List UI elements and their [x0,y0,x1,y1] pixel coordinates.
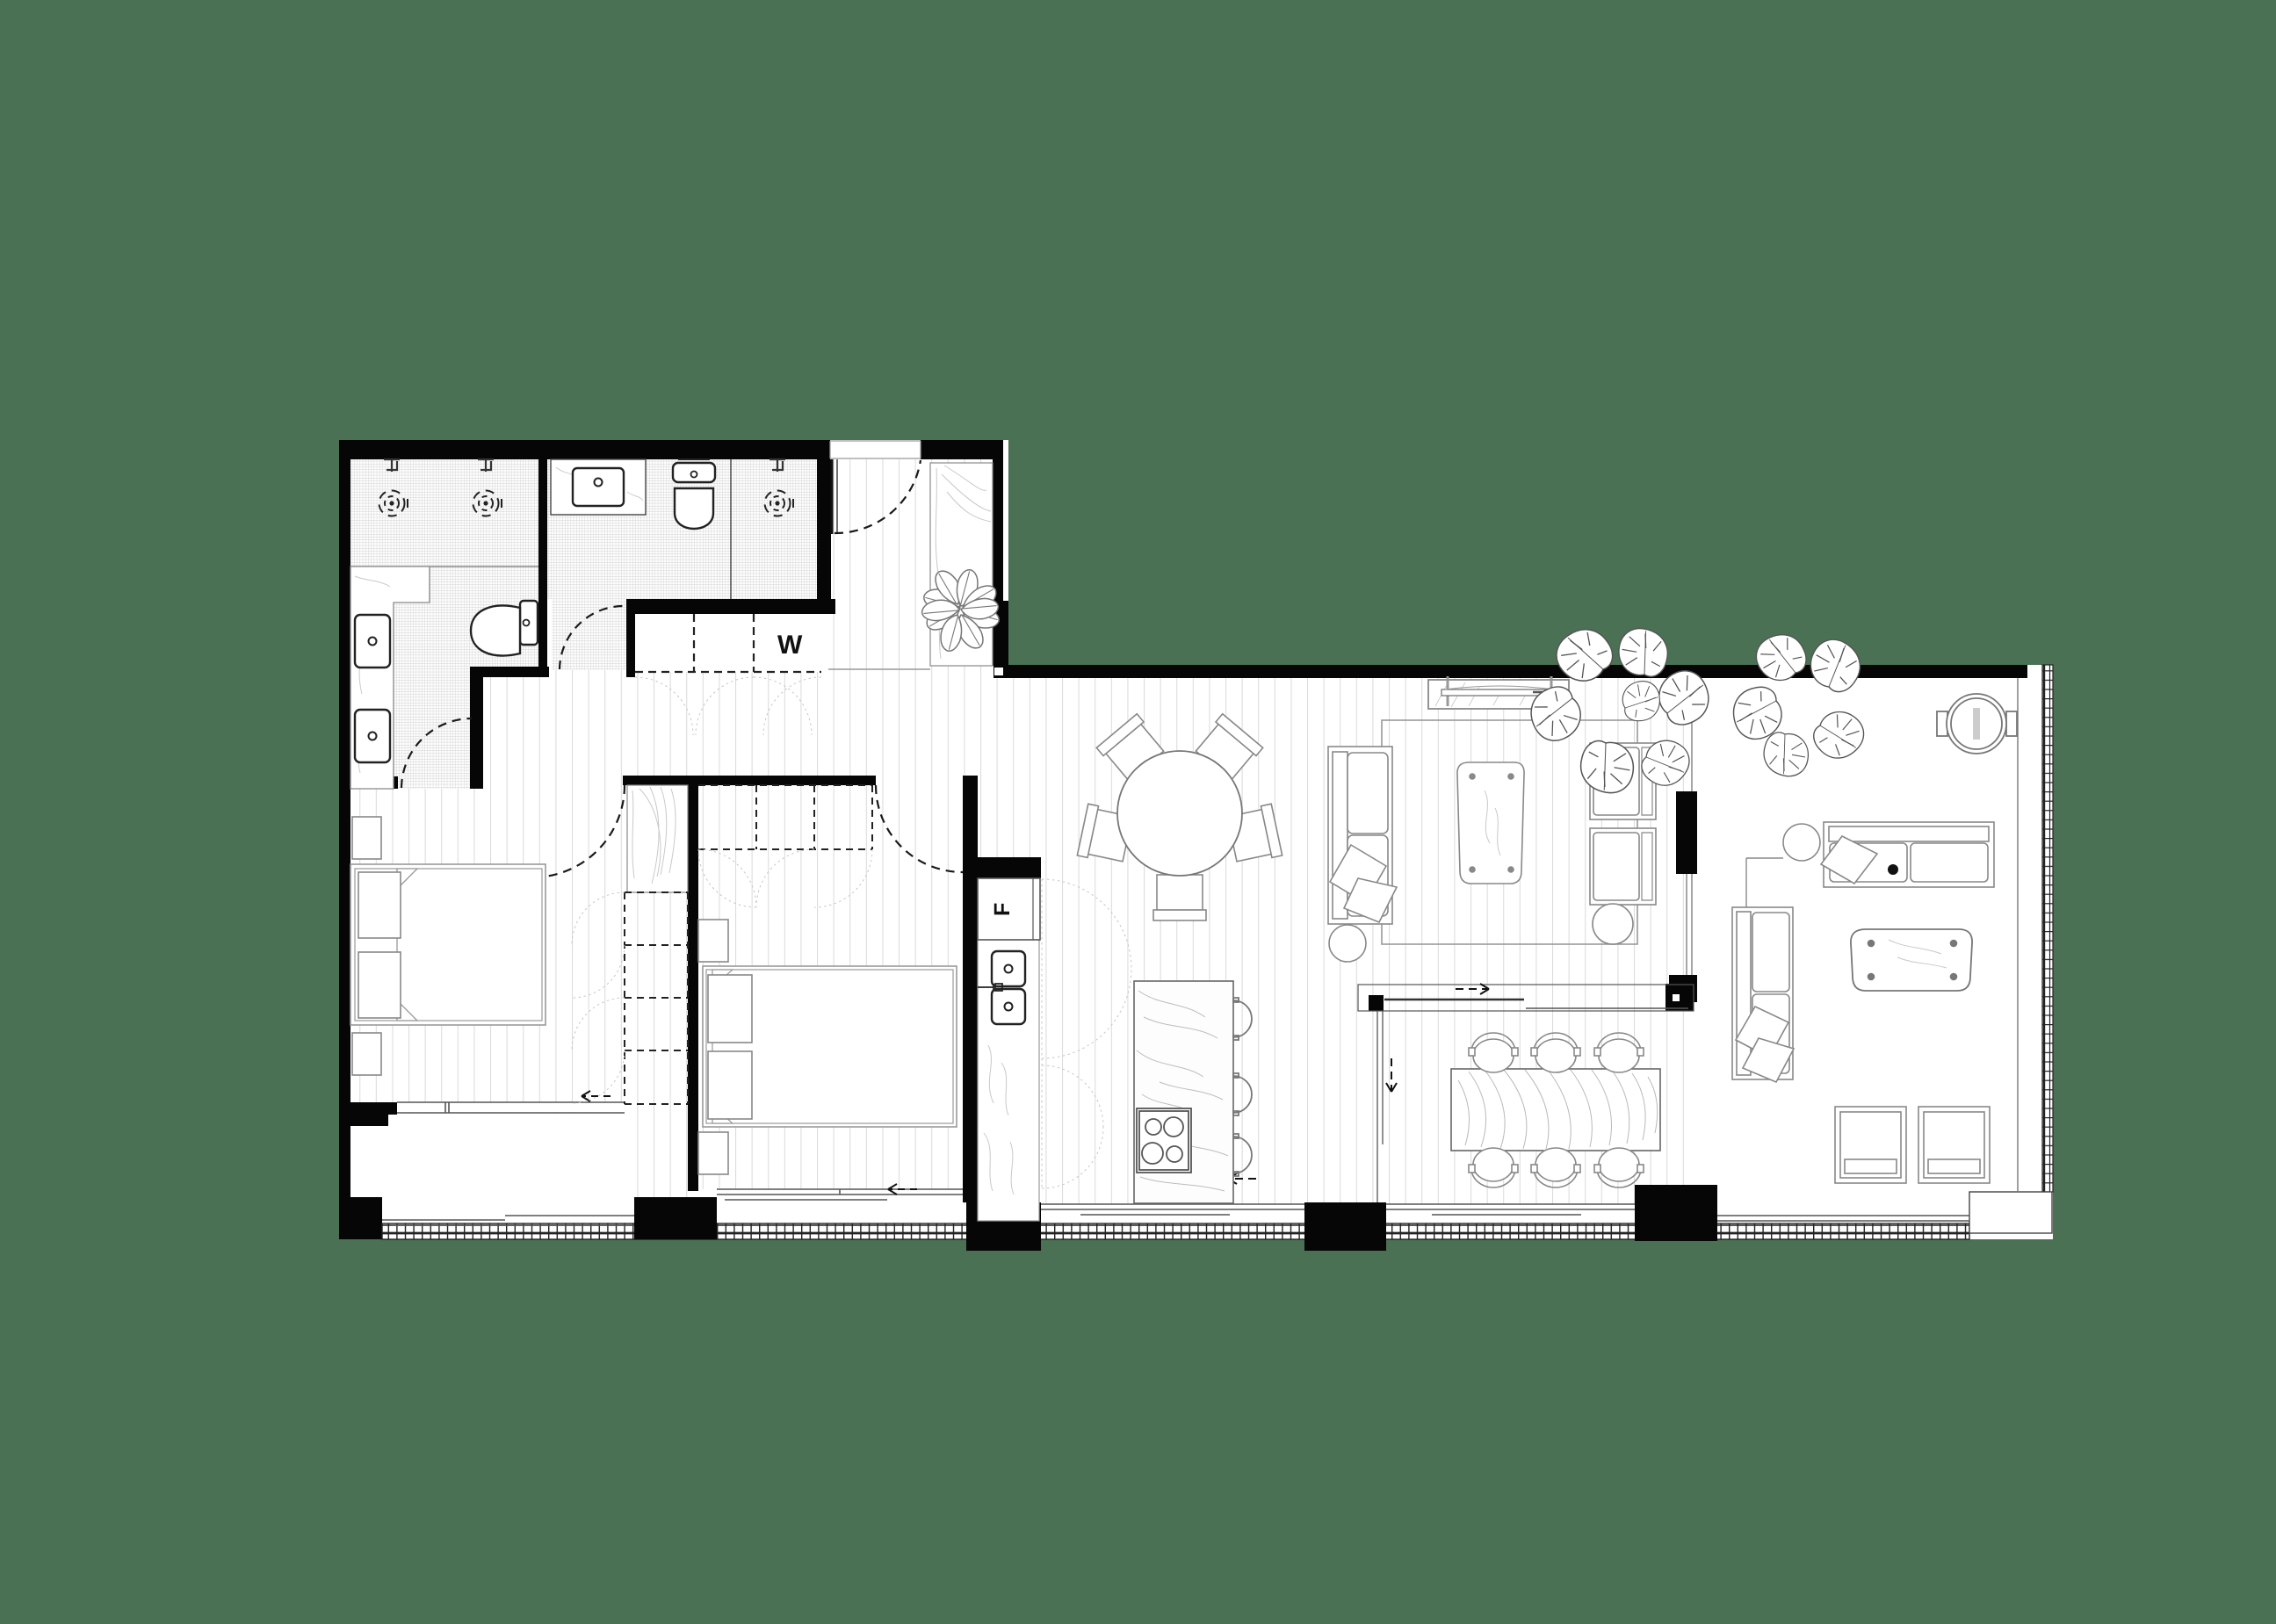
svg-text:W: W [777,631,803,660]
svg-text:F: F [990,903,1015,916]
